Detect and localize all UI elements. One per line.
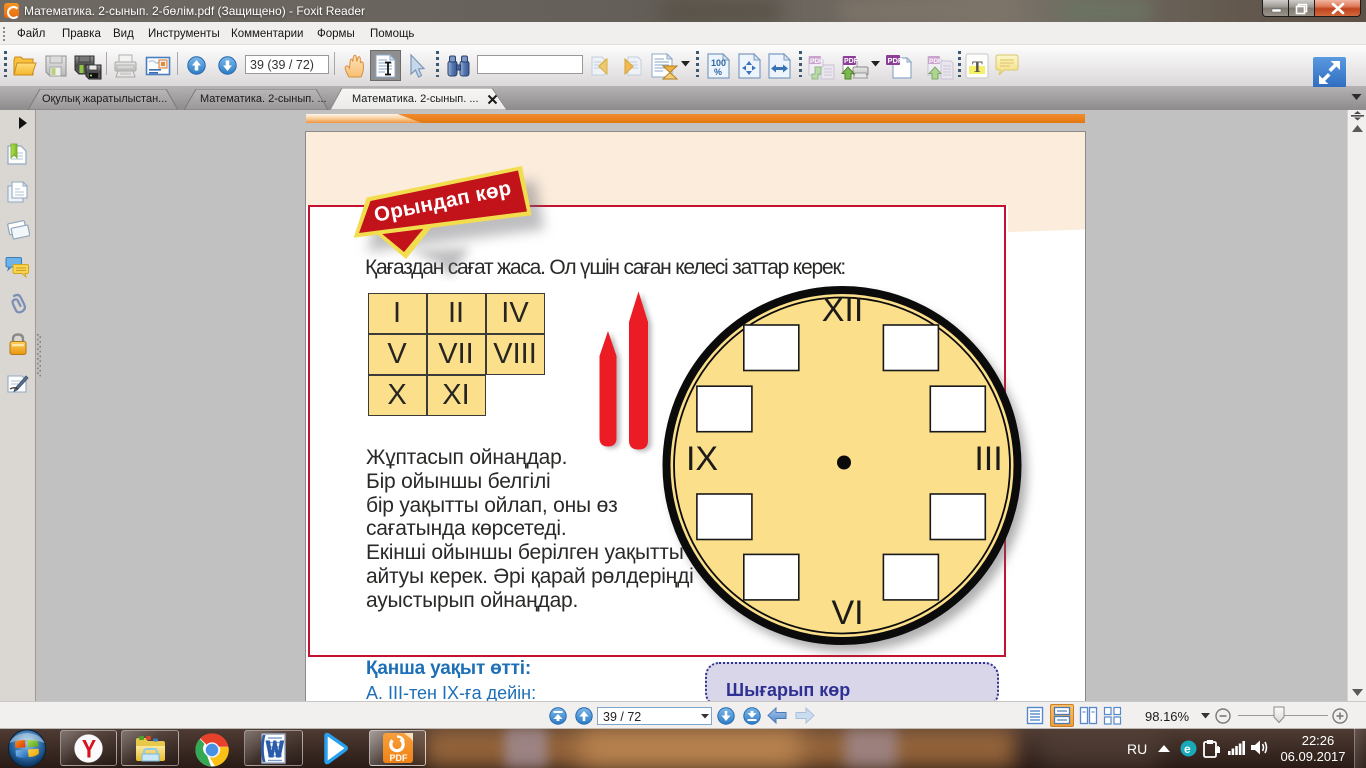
svg-text:PDF: PDF [390,753,409,763]
svg-text:PDF: PDF [888,56,903,65]
svg-text:PDF: PDF [929,58,942,65]
svg-text:VI: VI [831,594,863,632]
svg-text:XII: XII [822,291,864,329]
svg-text:%: % [714,67,722,77]
svg-text:PDF: PDF [844,58,859,65]
svg-text:PDF: PDF [810,58,823,65]
svg-text:III: III [974,440,1002,478]
svg-text:T: T [972,59,983,76]
svg-text:e: e [1184,742,1191,756]
